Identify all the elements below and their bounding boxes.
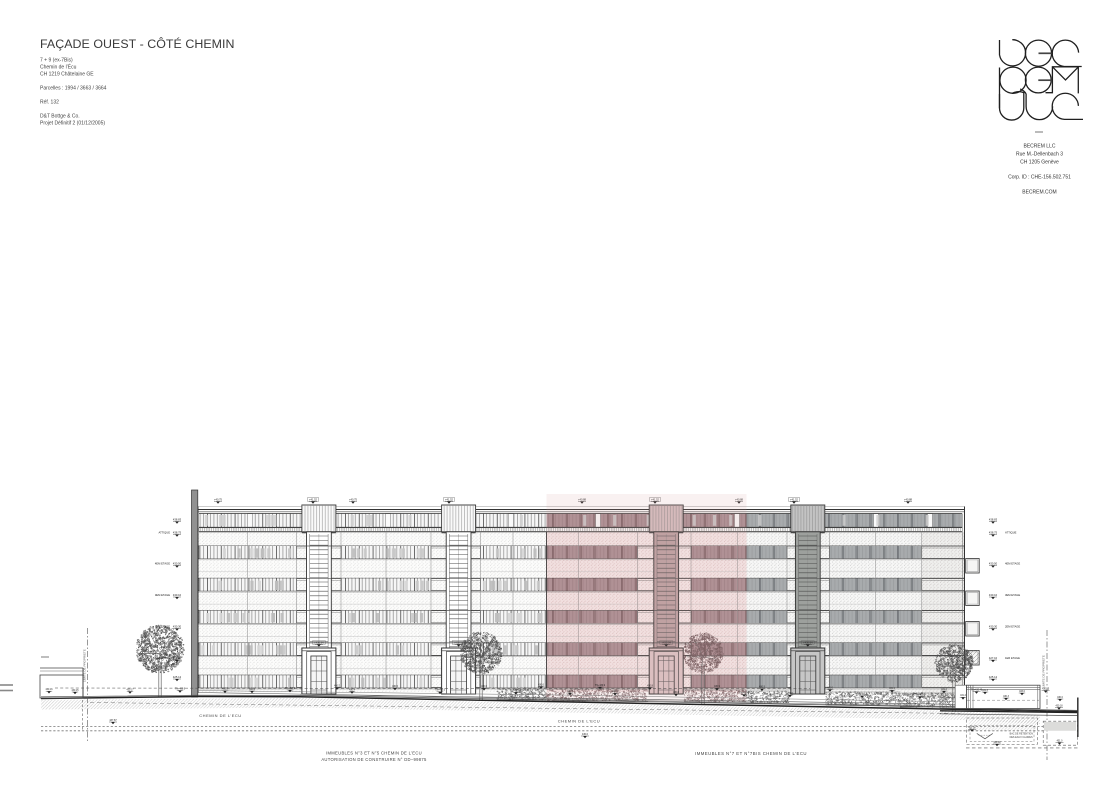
svg-text:CH 1205 Genève: CH 1205 Genève (1020, 160, 1059, 166)
svg-text:3EM ETAGE: 3EM ETAGE (1005, 593, 1020, 597)
svg-text:BECREM LLC: BECREM LLC (1024, 144, 1056, 150)
svg-text:+41.52: +41.52 (309, 497, 318, 501)
svg-text:BECREM.COM: BECREM.COM (1022, 190, 1056, 196)
svg-text:Réf. 132: Réf. 132 (40, 100, 59, 106)
svg-text:438.75: 438.75 (989, 530, 998, 534)
svg-text:+40.75: +40.75 (349, 497, 358, 501)
svg-text:2EM ETAGE: 2EM ETAGE (1005, 625, 1020, 629)
svg-text:ATTIQUE: ATTIQUE (1005, 531, 1017, 535)
svg-text:427.10: 427.10 (989, 656, 998, 660)
svg-text:7 + 9 (ex-7Bis): 7 + 9 (ex-7Bis) (40, 58, 73, 64)
svg-text:425.12: 425.12 (989, 675, 998, 679)
svg-text:Rue M.-Dellenbach 3: Rue M.-Dellenbach 3 (1016, 152, 1063, 158)
svg-text:438.75: 438.75 (173, 530, 182, 534)
svg-text:427.10: 427.10 (173, 656, 182, 660)
svg-text:1ER ETAGE: 1ER ETAGE (1005, 656, 1020, 660)
svg-text:+40.75: +40.75 (214, 497, 223, 501)
svg-text:Parcelles : 1994 / 3663 / 3664: Parcelles : 1994 / 3663 / 3664 (40, 86, 107, 92)
svg-text:2EM ETAGE: 2EM ETAGE (155, 625, 170, 629)
svg-text:CH 1219 Châtelaine GE: CH 1219 Châtelaine GE (40, 72, 94, 78)
svg-text:3EM ETAGE: 3EM ETAGE (155, 593, 170, 597)
svg-text:D&T Bottge & Co.: D&T Bottge & Co. (40, 114, 80, 120)
svg-text:+430.94: +430.94 (803, 640, 813, 644)
svg-text:+40.88: +40.88 (904, 497, 913, 501)
svg-text:430.10: 430.10 (173, 593, 182, 597)
svg-text:4EM ETAGE: 4EM ETAGE (155, 562, 170, 566)
svg-text:430.10: 430.10 (989, 593, 998, 597)
svg-text:Corp. ID : CHE-156.502.751: Corp. ID : CHE-156.502.751 (1008, 175, 1071, 181)
svg-text:ATTIQUE: ATTIQUE (159, 531, 171, 535)
svg-text:438.83: 438.83 (989, 517, 998, 521)
svg-text:430.30: 430.30 (989, 624, 998, 628)
svg-text:4EM ETAGE: 4EM ETAGE (1005, 562, 1020, 566)
svg-text:430.50: 430.50 (173, 561, 182, 565)
svg-text:425.12: 425.12 (173, 675, 182, 679)
svg-text:430.30: 430.30 (173, 624, 182, 628)
svg-text:+41.52: +41.52 (445, 497, 454, 501)
svg-text:Projet Définitif 2 (01/12/2005: Projet Définitif 2 (01/12/2005) (40, 121, 105, 127)
svg-text:1ER ETAGE: 1ER ETAGE (155, 656, 170, 660)
svg-text:FAÇADE OUEST - CÔTÉ CHEMIN: FAÇADE OUEST - CÔTÉ CHEMIN (40, 36, 235, 51)
svg-text:Chemin de l’Écu: Chemin de l’Écu (40, 64, 77, 71)
svg-text:+430.94: +430.94 (314, 640, 324, 644)
svg-text:+41.52: +41.52 (790, 497, 799, 501)
svg-text:430.50: 430.50 (989, 561, 998, 565)
svg-text:438.83: 438.83 (173, 517, 182, 521)
